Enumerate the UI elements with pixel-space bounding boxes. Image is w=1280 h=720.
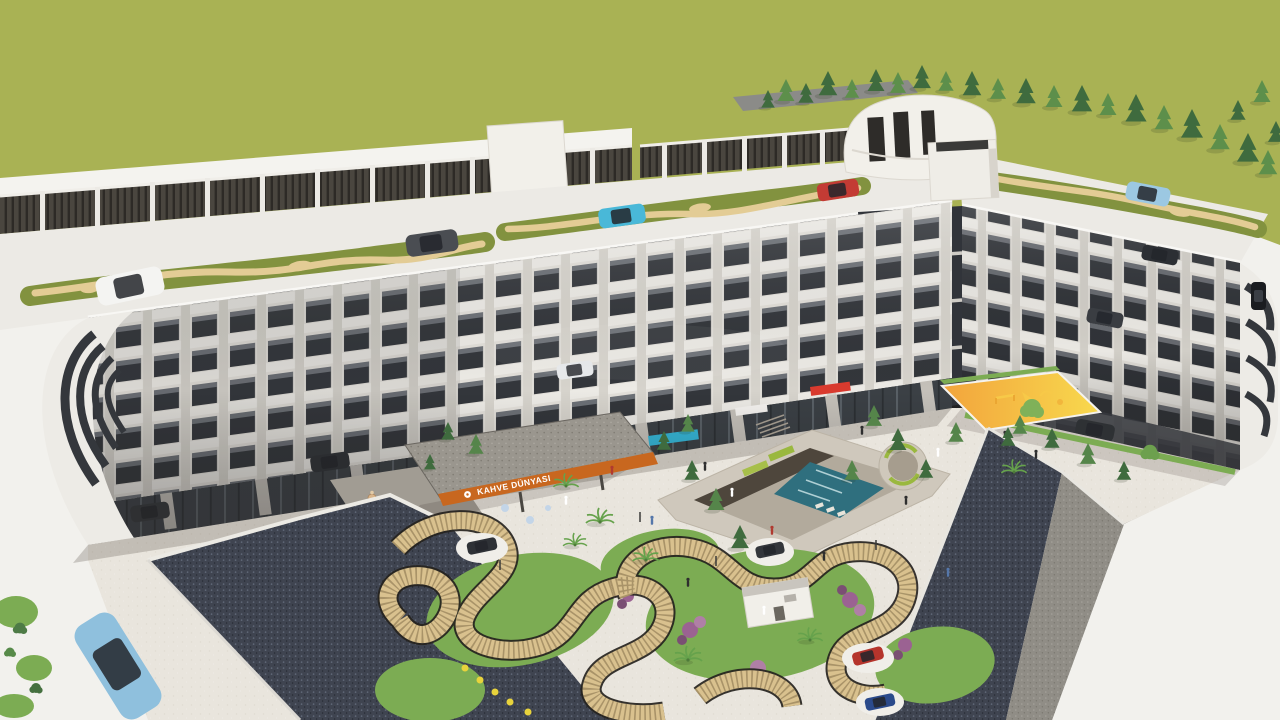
scene-svg: KAHVE DÜNYASI [0, 0, 1280, 720]
roof-stair-box [928, 139, 999, 200]
street-car-dark [1251, 282, 1266, 310]
watermark [490, 324, 790, 380]
render-canvas: KAHVE DÜNYASI [0, 0, 1280, 720]
